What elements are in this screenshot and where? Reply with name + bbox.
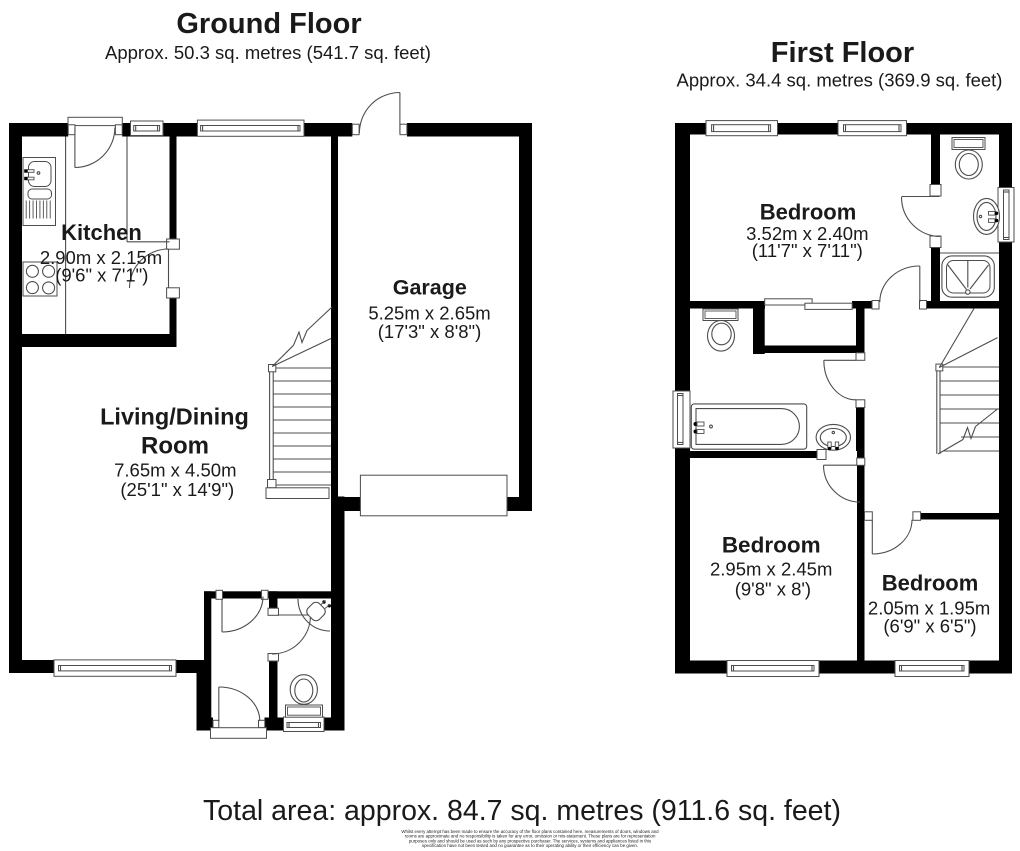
- svg-text:Total area: approx. 84.7 sq. m: Total area: approx. 84.7 sq. metres (911…: [203, 795, 841, 827]
- svg-text:Approx. 34.4 sq. metres (369.9: Approx. 34.4 sq. metres (369.9 sq. feet): [677, 70, 1003, 91]
- svg-text:Kitchen: Kitchen: [61, 220, 142, 245]
- svg-text:Approx. 50.3 sq. metres (541.7: Approx. 50.3 sq. metres (541.7 sq. feet): [105, 42, 431, 63]
- svg-text:2.95m x 2.45m: 2.95m x 2.45m: [710, 559, 832, 580]
- svg-text:(11'7" x 7'11"): (11'7" x 7'11"): [752, 240, 863, 261]
- svg-text:Living/Dining: Living/Dining: [100, 404, 249, 430]
- svg-text:Garage: Garage: [393, 276, 467, 300]
- svg-text:Room: Room: [141, 433, 209, 460]
- svg-text:(17'3" x 8'8"): (17'3" x 8'8"): [378, 321, 482, 342]
- svg-text:(9'8" x 8'): (9'8" x 8'): [735, 578, 811, 599]
- svg-text:Bedroom: Bedroom: [722, 533, 821, 558]
- svg-text:Bedroom: Bedroom: [882, 571, 979, 596]
- svg-text:7.65m x 4.50m: 7.65m x 4.50m: [114, 460, 236, 481]
- svg-text:specification have not been te: specification have not been tested and n…: [422, 843, 638, 848]
- svg-text:(9'6" x 7'1"): (9'6" x 7'1"): [55, 265, 148, 286]
- svg-text:First Floor: First Floor: [771, 37, 914, 69]
- svg-text:(6'9" x 6'5"): (6'9" x 6'5"): [883, 615, 976, 636]
- svg-text:Bedroom: Bedroom: [760, 200, 857, 225]
- svg-text:(25'1" x 14'9"): (25'1" x 14'9"): [120, 479, 234, 500]
- svg-text:Ground Floor: Ground Floor: [176, 8, 361, 40]
